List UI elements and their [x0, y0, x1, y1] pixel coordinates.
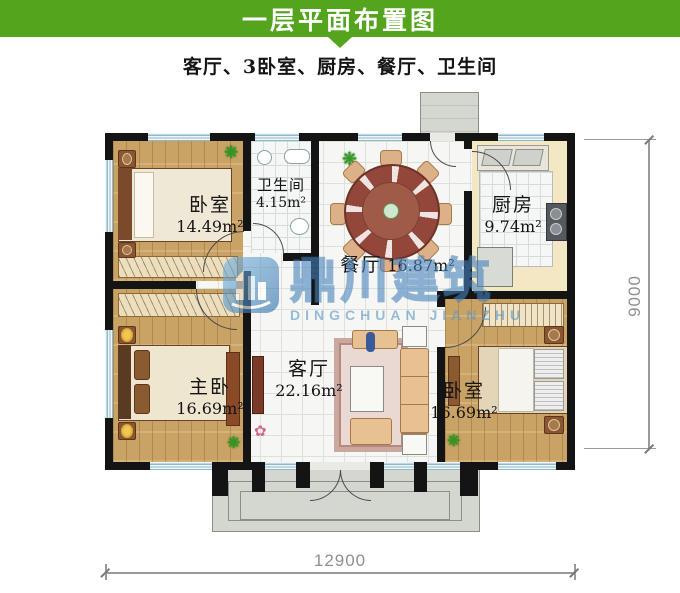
- window: [384, 462, 414, 470]
- front-door-opening: [310, 462, 370, 470]
- room-name: 厨房: [468, 190, 558, 217]
- wall: [464, 141, 472, 149]
- dimension-line-bottom: [105, 572, 575, 574]
- back-porch-steps: [420, 92, 479, 136]
- flower-icon: ✿: [254, 424, 267, 439]
- window: [150, 462, 212, 470]
- bedroom2-bed-pillow: [534, 349, 564, 379]
- dimension-height-label: 9000: [625, 256, 645, 336]
- room-name: 主卧: [160, 372, 260, 399]
- dingchuan-logo-icon: [222, 256, 280, 319]
- window: [265, 462, 296, 470]
- master-nightstand-lamp: [118, 422, 136, 440]
- kitchen-sink-basin: [512, 149, 544, 166]
- watermark-name-en: DINGCHUAN JIANZHU: [290, 307, 525, 323]
- porch-pillar: [212, 462, 228, 496]
- watermark: 鼎川建筑 DINGCHUAN JIANZHU: [222, 256, 622, 323]
- armchair: [350, 418, 392, 445]
- room-area: 22.16m²: [259, 381, 359, 400]
- plant-icon: ❋: [224, 144, 238, 161]
- master-bed-headboard: [118, 345, 131, 419]
- room-name: 客厅: [259, 354, 359, 381]
- room-area: 14.49m²: [158, 217, 262, 236]
- side-table: [402, 326, 427, 347]
- porch-pillar: [252, 462, 265, 492]
- room-label-kitchen: 厨房 9.74m²: [468, 190, 558, 236]
- porch-pillar: [460, 462, 478, 496]
- window: [105, 160, 113, 232]
- dimension-width-label: 12900: [300, 551, 380, 571]
- room-area: 16.69m²: [414, 403, 514, 422]
- porch-pillar: [296, 462, 310, 488]
- porch-pillar: [414, 462, 427, 492]
- bedroom1-bed-pillows: [134, 172, 154, 238]
- plant-icon: ❋: [447, 434, 460, 450]
- bathtub: [284, 149, 310, 164]
- window: [498, 133, 544, 141]
- person-figure: [366, 332, 375, 352]
- bedroom1-nightstand: [118, 150, 136, 168]
- room-area: 16.69m²: [160, 399, 260, 418]
- bedroom2-nightstand: [544, 326, 564, 344]
- toilet: [290, 218, 309, 235]
- window: [105, 330, 113, 418]
- sofa-bench: [352, 330, 398, 349]
- room-label-master: 主卧 16.69m²: [160, 372, 260, 418]
- room-area: 4.15m²: [246, 195, 316, 211]
- bedroom2-nightstand: [544, 416, 564, 434]
- plant-icon: ❋: [227, 436, 240, 452]
- dining-table-dish: [383, 203, 399, 219]
- bedroom2-bed-pillow: [534, 381, 564, 411]
- room-name: 卫生间: [246, 174, 316, 195]
- room-label-bathroom: 卫生间 4.15m²: [246, 174, 316, 211]
- window: [148, 133, 210, 141]
- watermark-name-cn: 鼎川建筑: [290, 256, 525, 305]
- dimension-extension: [584, 139, 656, 140]
- bedroom1-bed-headboard: [118, 168, 132, 240]
- wall: [113, 281, 196, 289]
- back-door-opening: [430, 133, 455, 141]
- bathroom-sink: [257, 150, 272, 165]
- room-area: 9.74m²: [468, 217, 558, 236]
- bedroom1-nightstand: [118, 242, 136, 258]
- room-name: 卧室: [414, 376, 514, 403]
- master-bed-pillow: [134, 384, 150, 414]
- master-nightstand-lamp: [118, 326, 136, 344]
- window: [358, 133, 402, 141]
- floor-plan: ❋ ❋ ❋ ✿ ❋: [0, 0, 680, 593]
- porch-pillar: [370, 462, 384, 488]
- room-label-living: 客厅 22.16m²: [259, 354, 359, 400]
- window: [255, 133, 299, 141]
- dimension-line-right: [648, 139, 650, 449]
- side-table: [402, 434, 427, 455]
- master-bed-pillow: [134, 350, 150, 380]
- dimension-extension: [584, 448, 656, 449]
- front-porch-step: [240, 491, 450, 520]
- window: [498, 462, 556, 470]
- window: [427, 462, 460, 470]
- room-label-bedroom2: 卧室 16.69m²: [414, 376, 514, 422]
